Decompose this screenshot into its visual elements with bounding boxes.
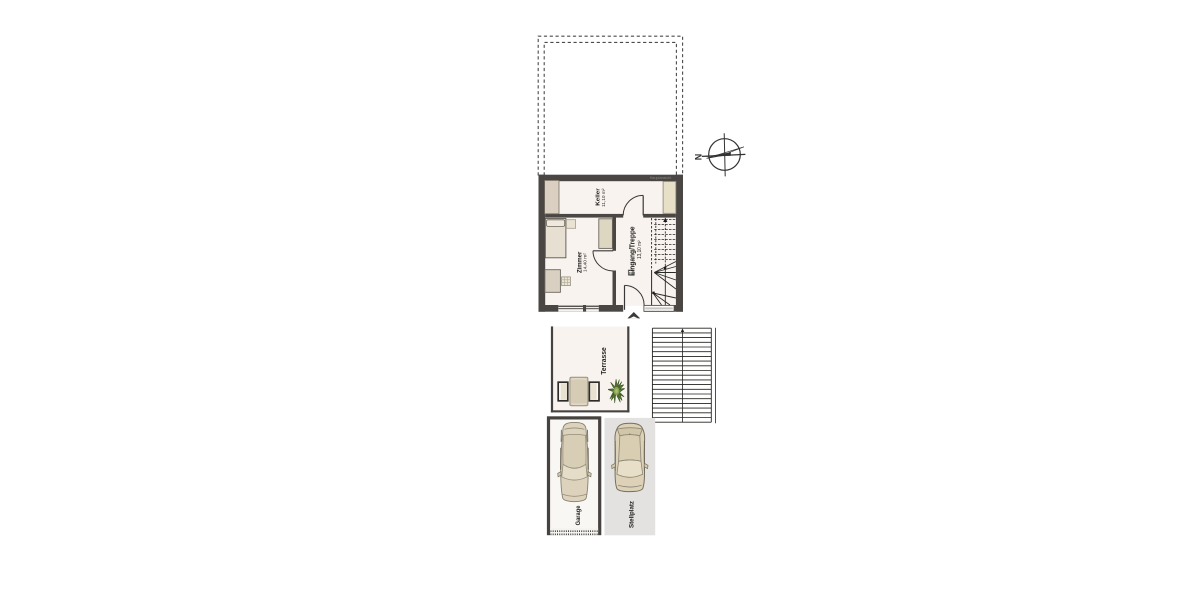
svg-text:Terrasse: Terrasse bbox=[601, 347, 608, 375]
svg-text:Stellplatz: Stellplatz bbox=[629, 500, 636, 528]
svg-text:N: N bbox=[694, 154, 704, 161]
svg-text:14,40 m²: 14,40 m² bbox=[582, 253, 587, 272]
svg-text:11,10 m²: 11,10 m² bbox=[601, 188, 606, 207]
svg-text:Eingang/Treppe: Eingang/Treppe bbox=[627, 226, 636, 276]
svg-text:13,10 m²: 13,10 m² bbox=[637, 240, 643, 259]
svg-text:Hauptansicht: Hauptansicht bbox=[650, 176, 672, 180]
svg-text:Garage: Garage bbox=[575, 505, 582, 525]
